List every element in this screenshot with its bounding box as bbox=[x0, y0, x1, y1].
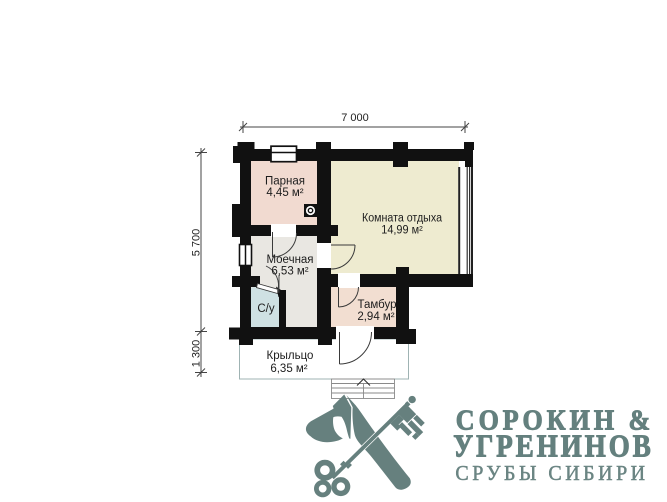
svg-text:4,45 м²: 4,45 м² bbox=[266, 187, 303, 199]
svg-text:6,35 м²: 6,35 м² bbox=[270, 363, 307, 375]
svg-text:5 700: 5 700 bbox=[191, 229, 203, 257]
svg-text:1 300: 1 300 bbox=[191, 340, 203, 368]
svg-text:2,94 м²: 2,94 м² bbox=[357, 311, 394, 323]
svg-text:Комната отдыха: Комната отдыха bbox=[362, 213, 443, 225]
svg-text:Тамбур: Тамбур bbox=[357, 299, 396, 311]
svg-text:14,99 м²: 14,99 м² bbox=[381, 225, 423, 237]
svg-text:Моечная: Моечная bbox=[266, 254, 313, 266]
svg-text:6,53 м²: 6,53 м² bbox=[271, 266, 308, 278]
svg-text:Парная: Парная bbox=[265, 176, 305, 188]
svg-text:7 000: 7 000 bbox=[341, 112, 369, 124]
svg-text:С/у: С/у bbox=[257, 303, 275, 315]
svg-text:СРУБЫ СИБИРИ: СРУБЫ СИБИРИ bbox=[455, 463, 648, 486]
svg-text:Крыльцо: Крыльцо bbox=[267, 350, 314, 362]
svg-text:УГРЕНИНОВ: УГРЕНИНОВ bbox=[453, 430, 653, 464]
